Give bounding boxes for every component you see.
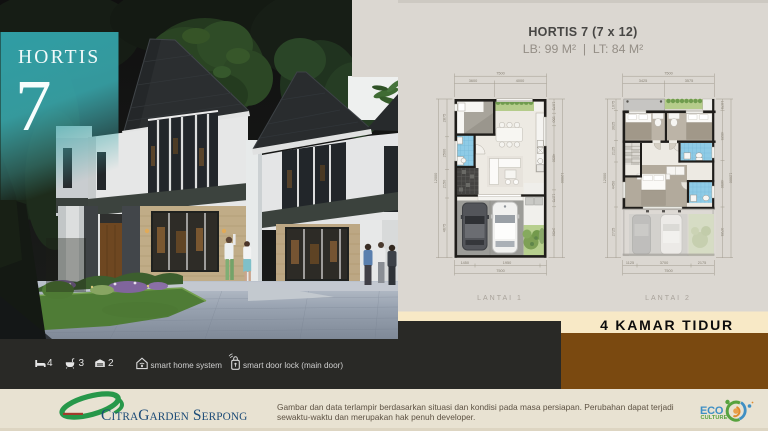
svg-text:4450: 4450 xyxy=(611,181,615,189)
svg-text:3025: 3025 xyxy=(611,122,615,130)
svg-text:1075: 1075 xyxy=(611,101,615,109)
svg-text:7500: 7500 xyxy=(664,269,672,273)
svg-text:1950: 1950 xyxy=(503,261,511,265)
svg-text:3450: 3450 xyxy=(551,228,555,236)
svg-text:1075: 1075 xyxy=(551,102,555,110)
svg-text:1075: 1075 xyxy=(720,101,724,109)
svg-text:1125: 1125 xyxy=(626,261,634,265)
svg-text:7500: 7500 xyxy=(664,71,672,75)
svg-text:2175: 2175 xyxy=(698,261,706,265)
svg-text:4025: 4025 xyxy=(720,132,724,140)
svg-text:950: 950 xyxy=(551,116,555,122)
svg-text:2875: 2875 xyxy=(442,114,446,122)
svg-text:3725: 3725 xyxy=(720,228,724,236)
svg-text:1450: 1450 xyxy=(461,261,469,265)
svg-text:2125: 2125 xyxy=(611,147,615,155)
svg-text:1275: 1275 xyxy=(551,194,555,202)
svg-text:3425: 3425 xyxy=(639,79,647,83)
svg-text:3575: 3575 xyxy=(685,79,693,83)
svg-text:12000: 12000 xyxy=(729,173,733,184)
svg-text:2725: 2725 xyxy=(611,228,615,236)
svg-text:12000: 12000 xyxy=(603,173,607,184)
svg-text:3600: 3600 xyxy=(469,79,477,83)
svg-text:12000: 12000 xyxy=(560,173,564,184)
svg-text:4675: 4675 xyxy=(442,224,446,232)
svg-text:4000: 4000 xyxy=(516,79,524,83)
svg-text:3700: 3700 xyxy=(660,261,668,265)
svg-text:4850: 4850 xyxy=(551,154,555,162)
svg-text:2150: 2150 xyxy=(442,180,446,188)
svg-text:12000: 12000 xyxy=(434,173,438,184)
svg-text:7500: 7500 xyxy=(496,269,504,273)
svg-text:7500: 7500 xyxy=(496,71,504,75)
svg-text:4650: 4650 xyxy=(720,180,724,188)
svg-text:2500: 2500 xyxy=(442,149,446,157)
